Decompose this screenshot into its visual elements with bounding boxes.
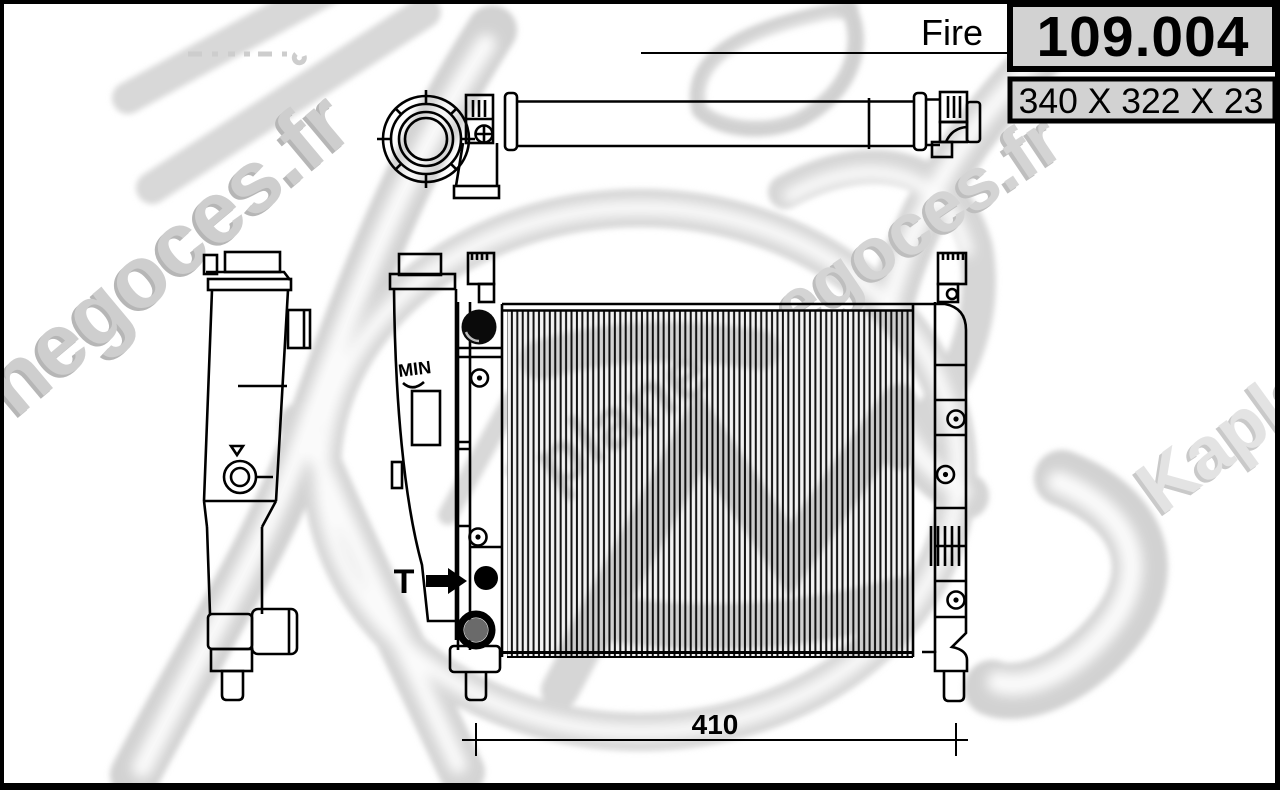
svg-text:T: T — [394, 563, 415, 601]
svg-text:410: 410 — [692, 709, 739, 740]
svg-text:Fire: Fire — [921, 12, 983, 53]
svg-text:Kaplane: Kaplane — [1122, 293, 1280, 529]
svg-text:109.004: 109.004 — [1036, 5, 1249, 69]
svg-text:340 X 322 X 23: 340 X 322 X 23 — [1019, 81, 1264, 121]
svg-text:MIN: MIN — [397, 357, 432, 381]
